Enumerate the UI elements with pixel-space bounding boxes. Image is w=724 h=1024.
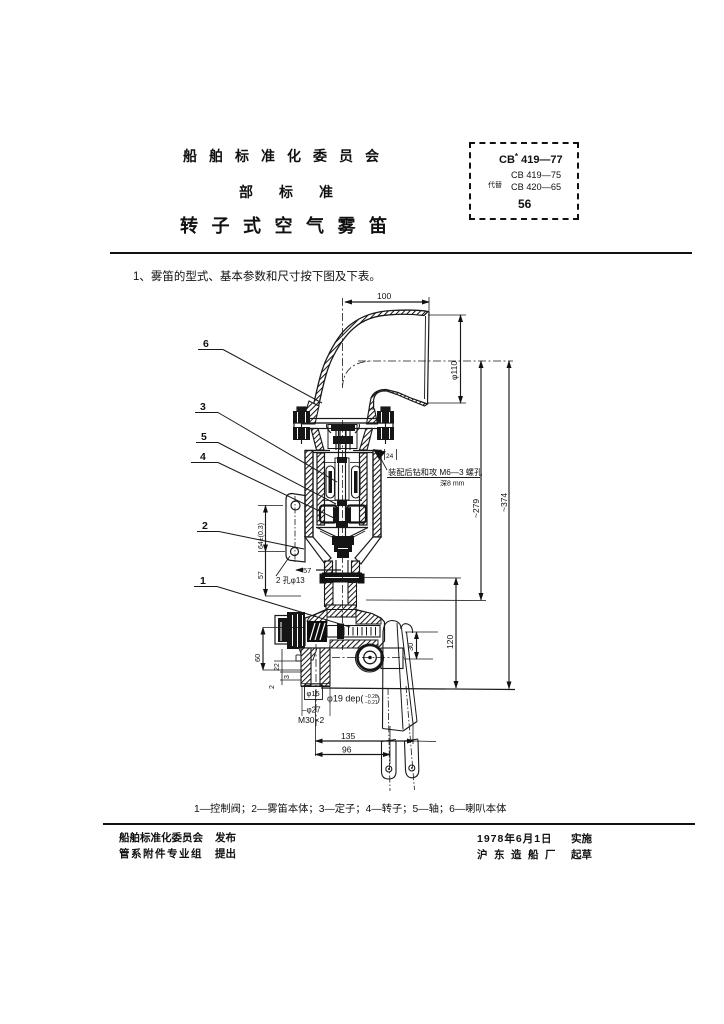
svg-text:): ) <box>377 694 380 704</box>
svg-text:100: 100 <box>377 291 391 301</box>
svg-text:57: 57 <box>303 566 311 575</box>
svg-text:24: 24 <box>386 453 394 460</box>
svg-text:6: 6 <box>203 338 209 350</box>
svg-text:装配后钻和攻 M6—3 螺孔: 装配后钻和攻 M6—3 螺孔 <box>388 467 482 477</box>
svg-text:60: 60 <box>253 654 262 662</box>
svg-text:φ19 dep(: φ19 dep( <box>327 694 363 704</box>
svg-text:64±(0.3): 64±(0.3) <box>258 523 265 549</box>
svg-text:120: 120 <box>445 635 455 649</box>
svg-text:−0.21: −0.21 <box>365 700 378 706</box>
svg-text:深8 mm: 深8 mm <box>440 479 465 488</box>
svg-text:96: 96 <box>342 745 352 755</box>
svg-text:φ15: φ15 <box>307 689 320 698</box>
svg-text:1: 1 <box>200 575 206 587</box>
svg-text:–φ27: –φ27 <box>302 706 321 715</box>
svg-text:3: 3 <box>200 401 206 413</box>
svg-text:22: 22 <box>274 663 281 671</box>
svg-text:57: 57 <box>258 571 265 579</box>
svg-text:~374: ~374 <box>499 493 509 512</box>
svg-text:φ110: φ110 <box>449 361 459 380</box>
svg-text:5: 5 <box>201 431 207 443</box>
svg-text:M30×2: M30×2 <box>298 715 324 725</box>
svg-text:4: 4 <box>200 451 206 463</box>
svg-text:2: 2 <box>202 520 208 532</box>
svg-text:~279: ~279 <box>471 499 481 518</box>
svg-text:30: 30 <box>406 643 415 651</box>
svg-text:3: 3 <box>284 675 291 679</box>
svg-text:2 孔φ13: 2 孔φ13 <box>276 576 305 585</box>
svg-text:135: 135 <box>341 731 355 741</box>
svg-text:2: 2 <box>269 685 276 689</box>
